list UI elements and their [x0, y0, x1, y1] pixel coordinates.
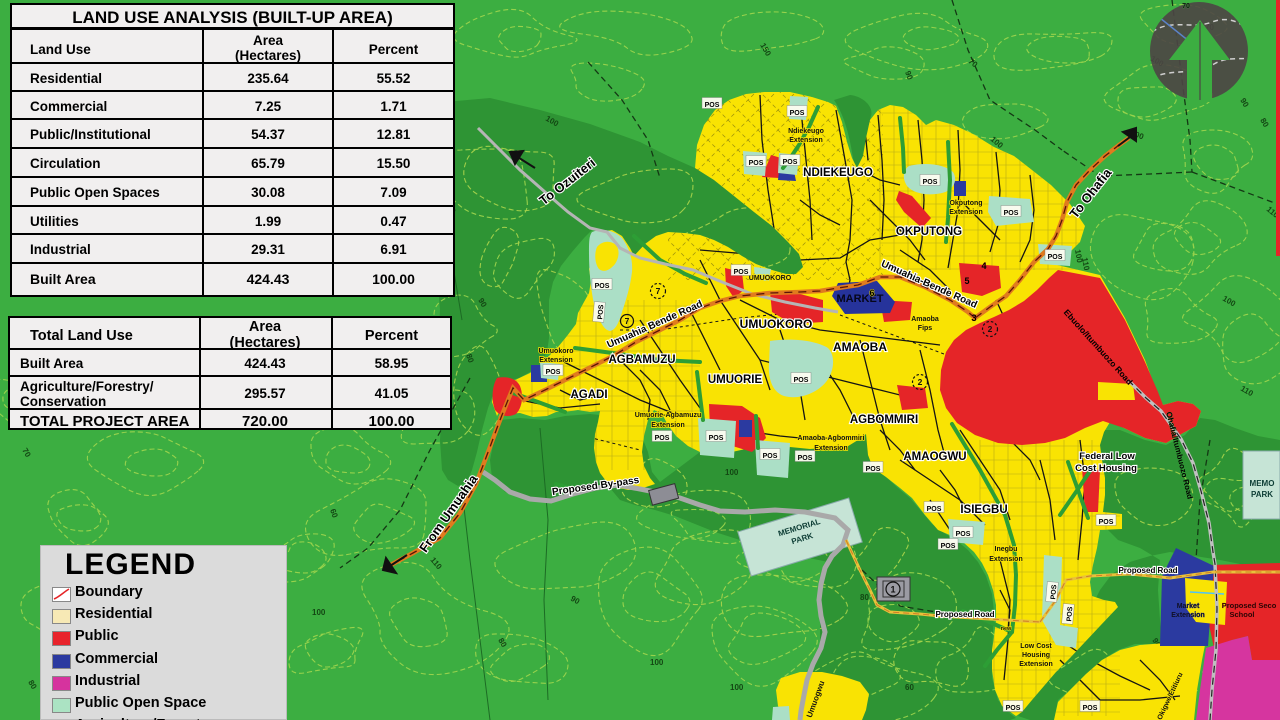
svg-text:Extension: Extension — [789, 137, 822, 144]
svg-text:AGBOMMIRI: AGBOMMIRI — [850, 414, 918, 426]
svg-text:POS: POS — [595, 283, 610, 290]
svg-text:POS: POS — [597, 304, 605, 320]
svg-text:POS: POS — [866, 466, 881, 473]
svg-text:AGBAMUZU: AGBAMUZU — [608, 354, 675, 366]
svg-text:Low Cost: Low Cost — [1020, 643, 1052, 650]
svg-text:POS: POS — [923, 179, 938, 186]
svg-text:UMUORIE: UMUORIE — [708, 374, 763, 386]
svg-text:NDIEKEUGO: NDIEKEUGO — [803, 167, 873, 179]
svg-text:3: 3 — [971, 313, 976, 323]
svg-text:Federal Low: Federal Low — [1079, 451, 1135, 462]
svg-text:Okputong: Okputong — [949, 200, 982, 207]
svg-text:POS: POS — [941, 543, 956, 550]
svg-text:POS: POS — [1066, 606, 1074, 622]
svg-text:Extension: Extension — [1019, 661, 1052, 668]
svg-text:Amaoba: Amaoba — [911, 316, 939, 323]
svg-text:2: 2 — [988, 324, 993, 334]
svg-text:Proposed Seco: Proposed Seco — [1222, 601, 1277, 610]
svg-text:MEMO: MEMO — [1250, 479, 1275, 488]
svg-text:70: 70 — [1182, 3, 1190, 10]
svg-text:4: 4 — [981, 261, 986, 271]
svg-text:School: School — [1229, 610, 1254, 619]
svg-text:Fips: Fips — [918, 325, 932, 332]
svg-text:new: new — [1001, 626, 1012, 632]
svg-text:Amaoba-Agbommiri: Amaoba-Agbommiri — [798, 435, 865, 442]
svg-text:100: 100 — [730, 683, 744, 692]
svg-text:80: 80 — [860, 593, 869, 602]
svg-text:POS: POS — [927, 506, 942, 513]
svg-text:PARK: PARK — [1251, 490, 1273, 499]
svg-text:Extension: Extension — [814, 445, 847, 452]
svg-text:2: 2 — [918, 377, 923, 387]
svg-text:POS: POS — [655, 435, 670, 442]
svg-text:Extension: Extension — [1171, 612, 1204, 619]
svg-text:POS: POS — [749, 160, 764, 167]
svg-text:MARKET: MARKET — [836, 293, 883, 305]
svg-text:Umuokoro: Umuokoro — [539, 348, 574, 355]
svg-text:POS: POS — [1099, 519, 1114, 526]
svg-text:AMAOGWU: AMAOGWU — [903, 451, 966, 463]
svg-text:POS: POS — [763, 453, 778, 460]
svg-text:POS: POS — [705, 102, 720, 109]
svg-text:POS: POS — [790, 110, 805, 117]
svg-text:POS: POS — [1004, 210, 1019, 217]
svg-text:UMUOKORO: UMUOKORO — [749, 275, 792, 282]
svg-text:AMAOBA: AMAOBA — [833, 340, 887, 354]
svg-text:100: 100 — [312, 608, 326, 617]
svg-text:POS: POS — [798, 455, 813, 462]
svg-text:100: 100 — [650, 658, 664, 667]
svg-text:POS: POS — [1083, 705, 1098, 712]
svg-text:1: 1 — [890, 585, 895, 595]
svg-text:POS: POS — [1050, 584, 1058, 600]
svg-text:AGADI: AGADI — [570, 389, 607, 401]
svg-text:POS: POS — [1006, 705, 1021, 712]
svg-text:6: 6 — [869, 288, 874, 298]
svg-text:Proposed Road: Proposed Road — [1118, 566, 1177, 575]
svg-text:POS: POS — [709, 435, 724, 442]
svg-text:POS: POS — [734, 269, 749, 276]
svg-text:Proposed Road: Proposed Road — [935, 610, 994, 619]
svg-text:Extension: Extension — [989, 556, 1022, 563]
svg-text:POS: POS — [956, 531, 971, 538]
svg-text:Extension: Extension — [539, 357, 572, 364]
svg-text:Inegbu: Inegbu — [995, 546, 1018, 553]
svg-text:Umuorie-Agbamuzu: Umuorie-Agbamuzu — [635, 412, 702, 419]
svg-text:POS: POS — [783, 159, 798, 166]
svg-text:7: 7 — [656, 286, 661, 296]
svg-text:Market: Market — [1177, 603, 1200, 610]
svg-text:UMUOKORO: UMUOKORO — [740, 317, 813, 331]
svg-text:Housing: Housing — [1022, 652, 1050, 659]
svg-text:POS: POS — [794, 377, 809, 384]
svg-text:60: 60 — [905, 683, 914, 692]
svg-text:POS: POS — [546, 369, 561, 376]
svg-text:100: 100 — [725, 468, 739, 477]
svg-text:7: 7 — [625, 316, 630, 326]
svg-text:Extension: Extension — [651, 422, 684, 429]
svg-text:ISIEGBU: ISIEGBU — [960, 504, 1007, 516]
svg-text:Cost Housing: Cost Housing — [1075, 463, 1137, 474]
svg-text:Extension: Extension — [949, 209, 982, 216]
svg-text:OKPUTONG: OKPUTONG — [896, 226, 962, 238]
svg-text:5: 5 — [964, 276, 969, 286]
svg-text:POS: POS — [1048, 254, 1063, 261]
svg-text:Ndiekeugo: Ndiekeugo — [788, 128, 824, 135]
